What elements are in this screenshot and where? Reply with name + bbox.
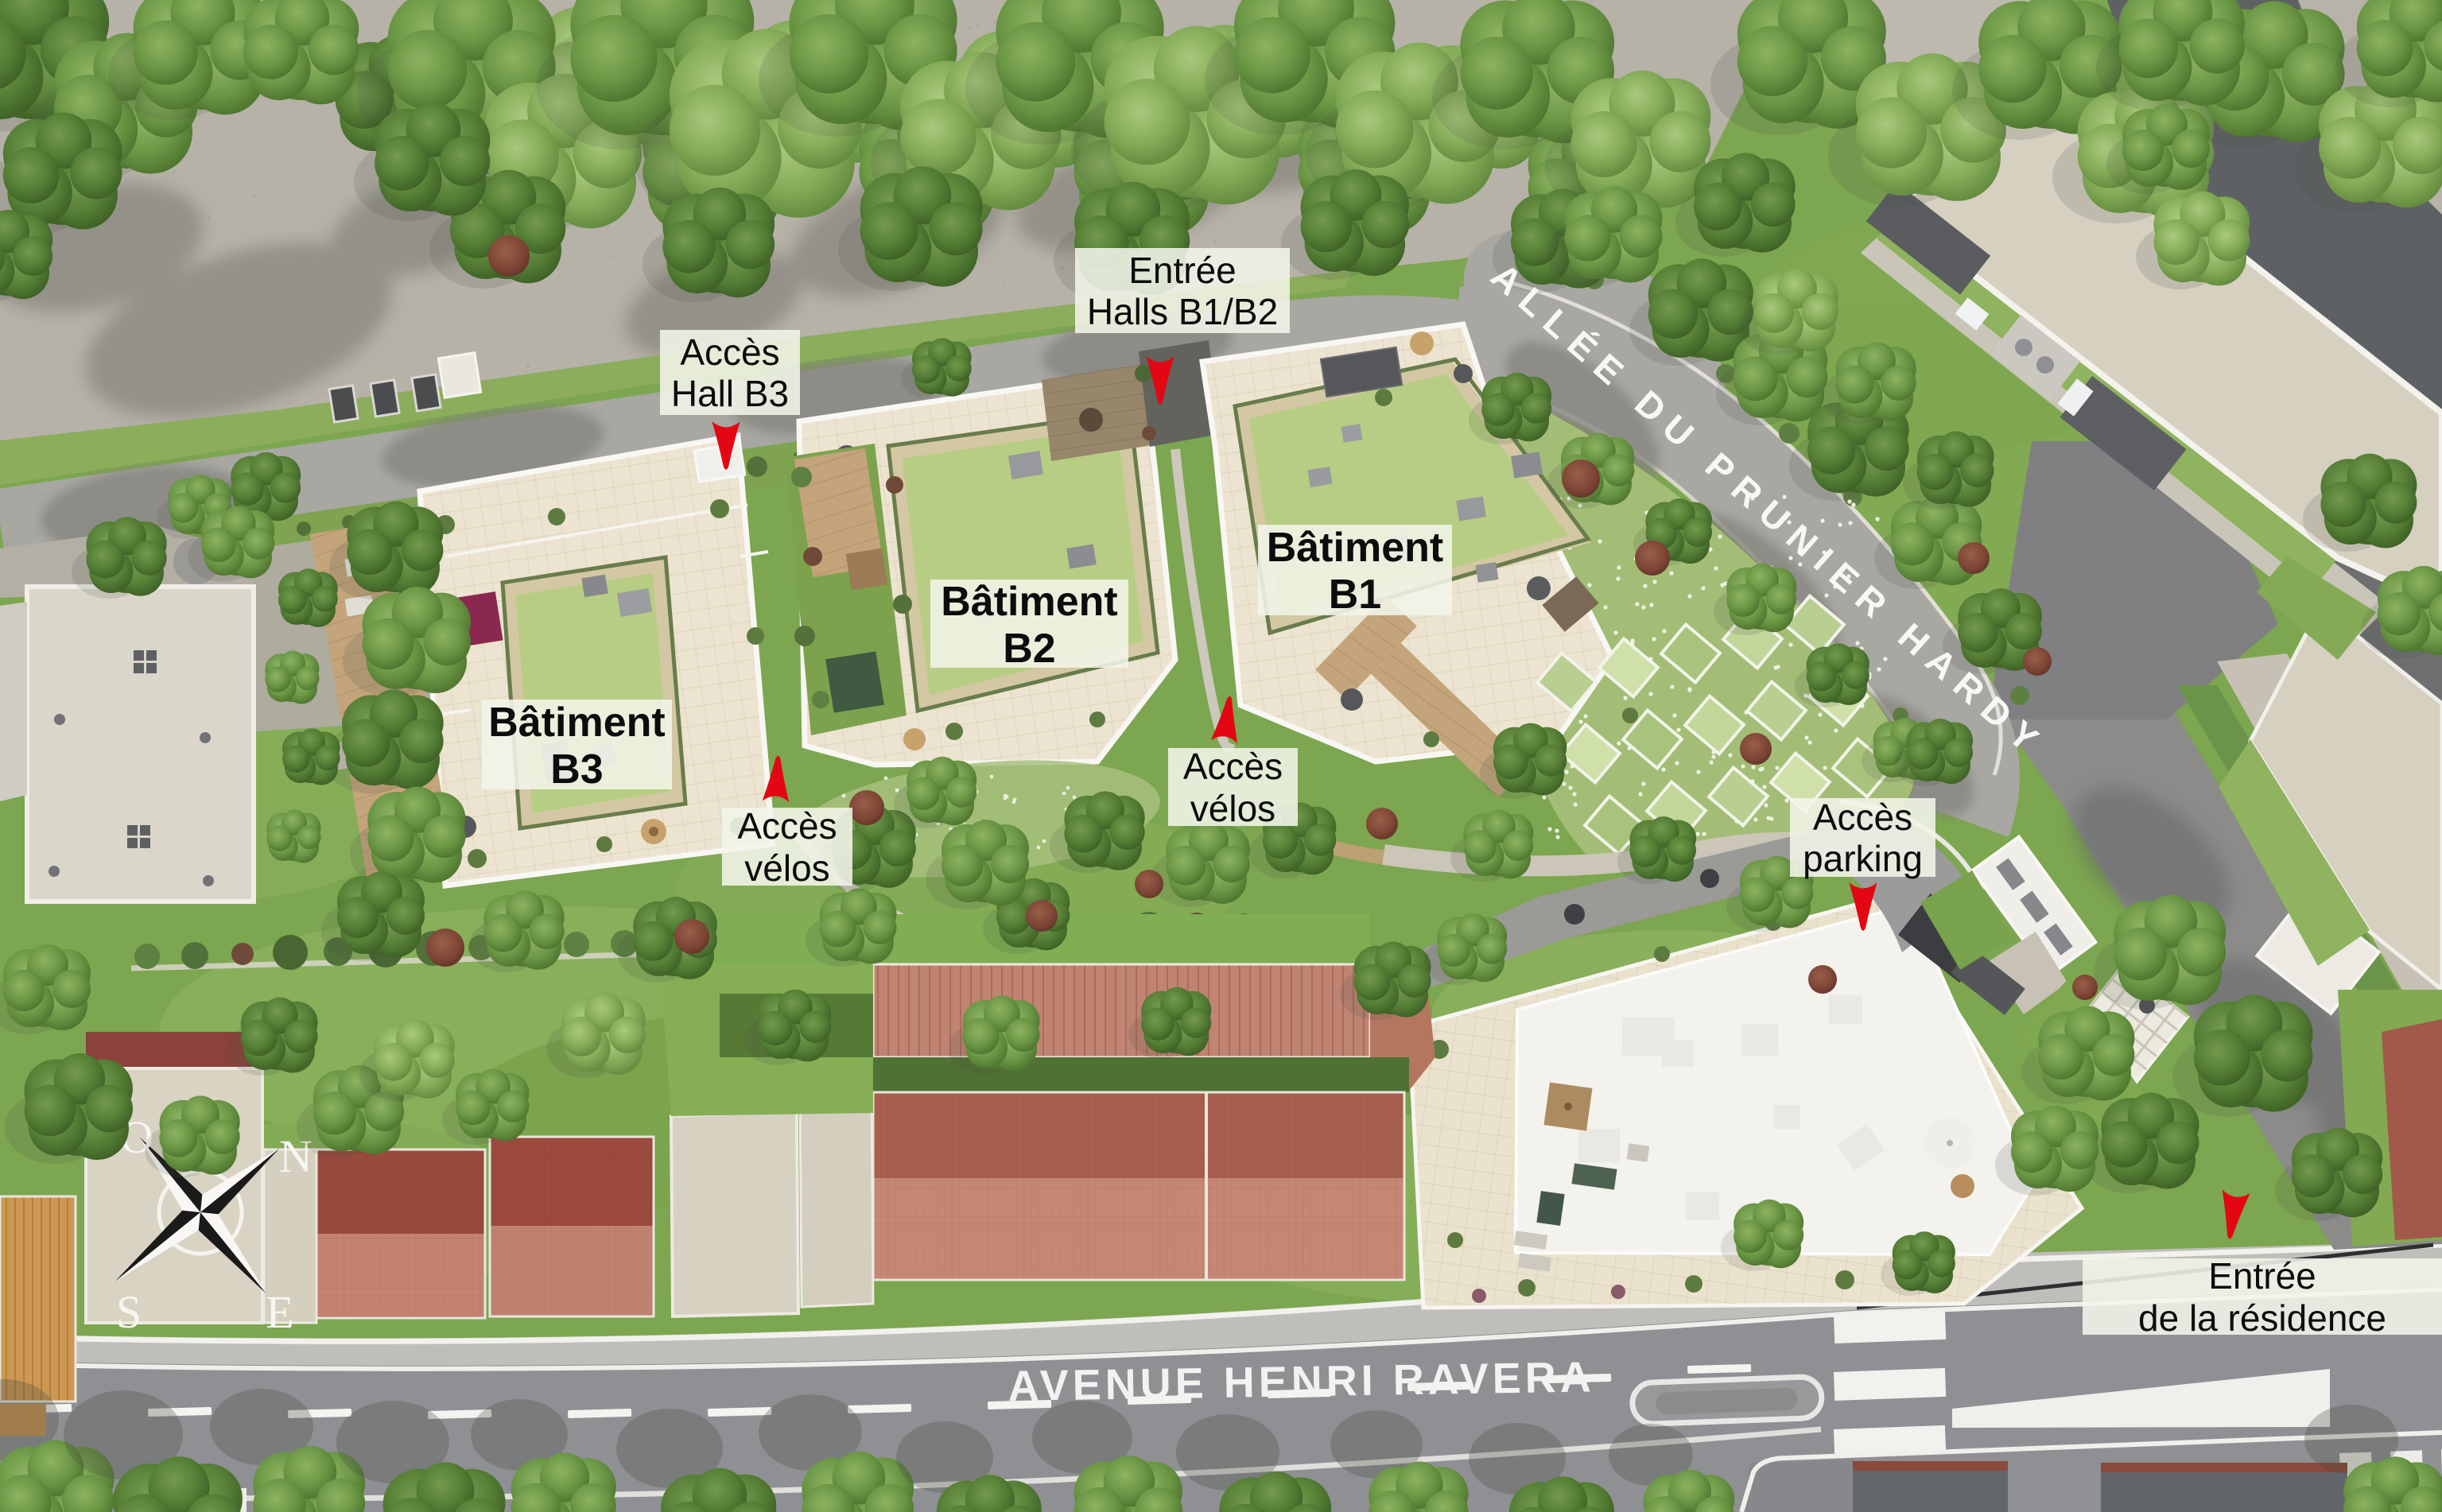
- svg-text:vélos: vélos: [744, 847, 829, 889]
- svg-text:B1: B1: [1329, 572, 1381, 618]
- svg-text:E: E: [266, 1286, 293, 1338]
- svg-text:B2: B2: [1003, 626, 1055, 672]
- svg-text:Hall B3: Hall B3: [671, 373, 789, 414]
- svg-text:Entrée: Entrée: [2208, 1255, 2316, 1297]
- svg-text:Accès: Accès: [1183, 746, 1283, 787]
- svg-text:Bâtiment: Bâtiment: [941, 579, 1117, 625]
- svg-text:S: S: [116, 1286, 142, 1338]
- svg-text:Accès: Accès: [1813, 797, 1912, 838]
- svg-text:parking: parking: [1803, 838, 1923, 879]
- svg-text:Bâtiment: Bâtiment: [488, 700, 665, 746]
- svg-text:AVENUE HENRI RAVERA: AVENUE HENRI RAVERA: [1007, 1353, 1595, 1410]
- svg-text:Accès: Accès: [680, 331, 779, 373]
- svg-text:Bâtiment: Bâtiment: [1267, 525, 1443, 571]
- svg-text:Halls B1/B2: Halls B1/B2: [1087, 291, 1278, 332]
- svg-text:Entrée: Entrée: [1128, 250, 1237, 291]
- svg-text:Accès: Accès: [737, 805, 837, 847]
- svg-text:de la résidence: de la résidence: [2138, 1297, 2386, 1339]
- svg-text:B3: B3: [550, 746, 603, 793]
- svg-text:vélos: vélos: [1190, 788, 1275, 829]
